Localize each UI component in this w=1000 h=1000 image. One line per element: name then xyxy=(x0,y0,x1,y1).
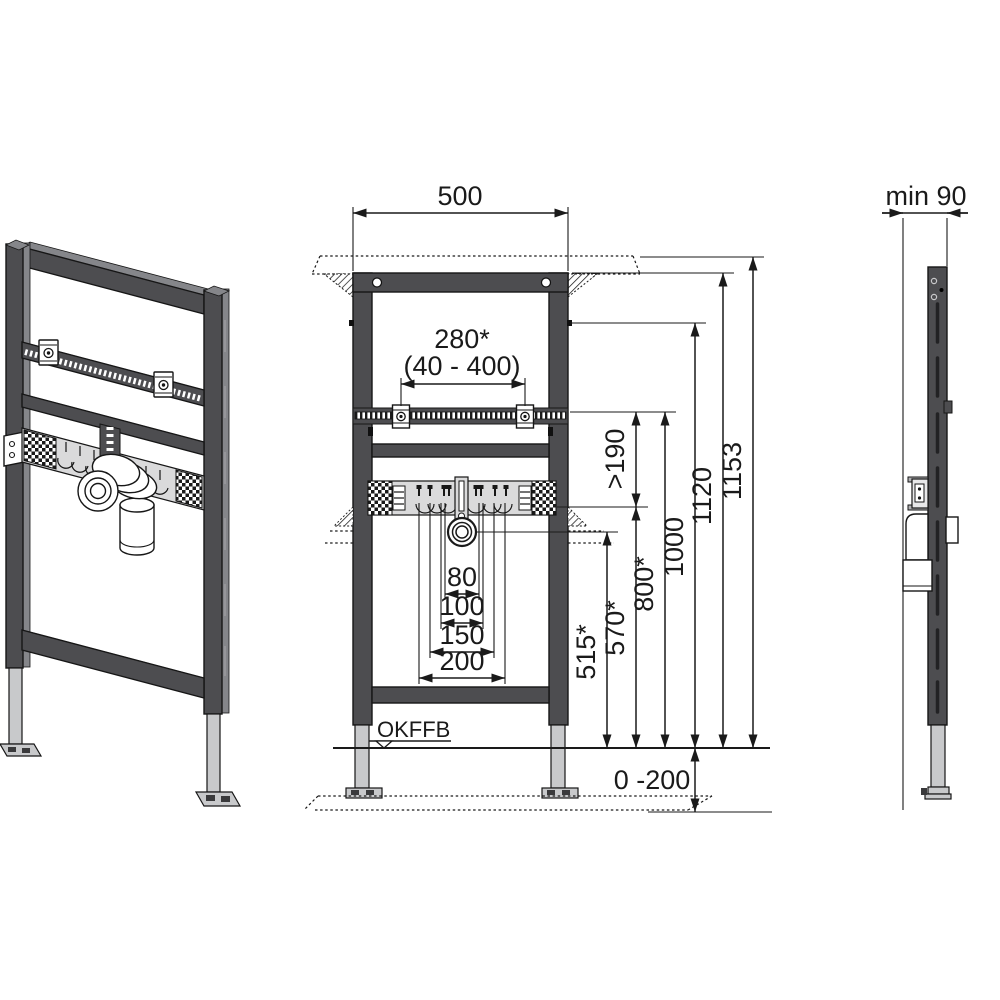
frame-rail-right xyxy=(204,286,229,714)
front-top-bar xyxy=(353,273,568,292)
dim-meter-height-label: 1000 xyxy=(659,517,689,577)
crossbar-front xyxy=(372,444,549,457)
dim-fixing-height-label: 800* xyxy=(629,556,659,612)
side-rail xyxy=(928,267,952,725)
drain-outlet xyxy=(448,518,476,546)
dim-floor-adjust: 0 -200 xyxy=(614,748,772,812)
dim-100-label: 100 xyxy=(439,591,484,621)
foot-3d-right xyxy=(196,714,240,806)
dim-bracket-range-label: (40 - 400) xyxy=(403,351,520,381)
side-view: min 90 xyxy=(882,181,968,810)
floor-level-label: OKFFB xyxy=(377,717,450,742)
mounting-plate-front xyxy=(368,477,556,522)
rail-clip-left xyxy=(368,427,373,436)
dim-80-label: 80 xyxy=(447,562,477,592)
dim-200-label: 200 xyxy=(439,646,484,676)
rail-clamp-front-right xyxy=(517,405,534,428)
wall-hatch-top-left xyxy=(324,274,353,297)
side-drain-pipe xyxy=(903,514,932,591)
meter-notch-left xyxy=(349,320,354,326)
screw-hole-right xyxy=(542,278,551,287)
floor-level-symbol: OKFFB xyxy=(369,717,451,748)
dim-bracket-spacing-label: 280* xyxy=(434,324,490,354)
dim-floor-adjust-label: 0 -200 xyxy=(614,765,691,795)
dim-depth-label: min 90 xyxy=(885,181,966,211)
dim-bracket-spacing: 280* (40 - 400) xyxy=(401,324,525,406)
foot-3d-left xyxy=(0,668,41,756)
rail-clamp-3d-right xyxy=(154,372,173,397)
dim-clearance-label: >190 xyxy=(600,429,630,490)
toothed-rail-front xyxy=(353,408,568,424)
dim-depth: min 90 xyxy=(882,181,968,213)
rail-clamp-3d-left xyxy=(39,340,58,365)
rail-clamp-front-left xyxy=(393,405,410,428)
lower-crossbar-front xyxy=(372,687,549,703)
rail-clip-right xyxy=(548,427,553,436)
dim-width-label: 500 xyxy=(437,181,482,211)
side-bracket xyxy=(908,477,928,510)
dim-width: 500 xyxy=(353,181,568,271)
perspective-view xyxy=(0,240,240,806)
foot-front-right xyxy=(542,725,578,798)
side-foot xyxy=(921,725,951,799)
dim-frame-height-label: 1120 xyxy=(687,467,717,525)
wall-mark-mid-left xyxy=(325,507,353,543)
wall-hatch-top-right xyxy=(568,274,597,297)
screw-hole-left xyxy=(373,278,382,287)
lower-crossbar-3d xyxy=(22,630,204,698)
ceiling-band xyxy=(312,256,640,274)
drawing-svg: OKFFB 500 280* (40 - 400) xyxy=(0,0,1000,1000)
side-clip xyxy=(944,401,952,413)
dim-supply-height-label: 570* xyxy=(600,600,630,656)
front-view: OKFFB 500 280* (40 - 400) xyxy=(304,181,772,812)
dim-drain-height-label: 515* xyxy=(571,624,601,680)
installation-drawing: OKFFB 500 280* (40 - 400) xyxy=(0,0,1000,1000)
side-fixture-box xyxy=(946,517,958,543)
dim-total-height-label: 1153 xyxy=(717,442,747,500)
